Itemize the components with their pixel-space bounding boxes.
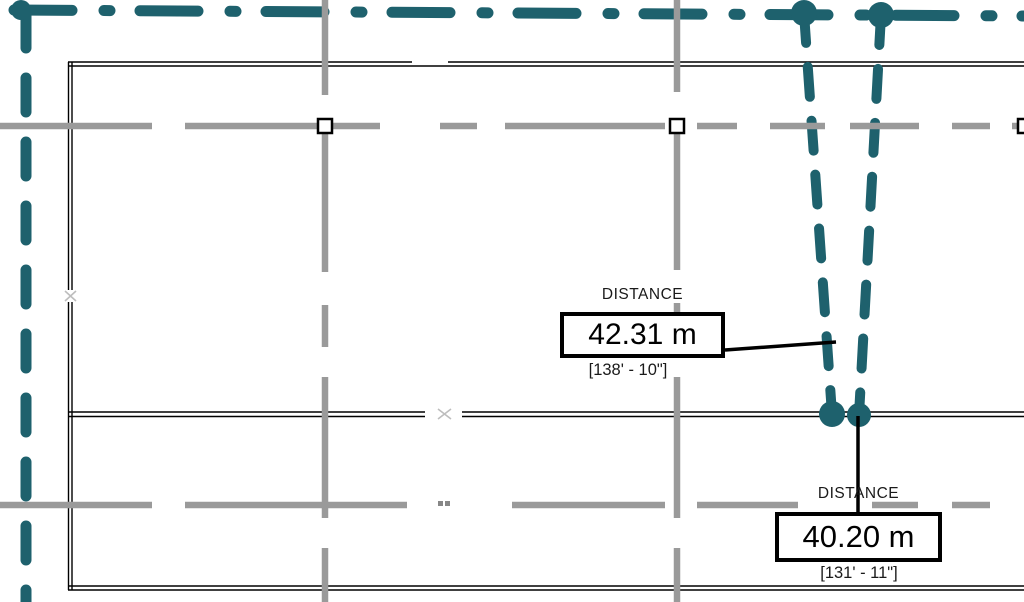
distance-tag-1-title[interactable]: DISTANCE xyxy=(560,286,725,304)
travel-path-right[interactable] xyxy=(859,15,881,415)
distance-tag-2-value-box[interactable]: 40.20 m xyxy=(775,512,942,562)
distance-tag-1-imperial: [138' - 10"] xyxy=(548,361,708,380)
travel-path-left[interactable] xyxy=(804,13,832,414)
wall-opening-x-marks xyxy=(65,291,451,419)
leader-line-tag1[interactable] xyxy=(725,342,836,350)
drawing-viewport[interactable]: DISTANCE 42.31 m [138' - 10"] DISTANCE 4… xyxy=(0,0,1024,602)
opening-x-icon xyxy=(438,409,451,419)
grid-anchor-square-icon[interactable] xyxy=(318,119,332,133)
distance-tag-1-value-box[interactable]: 42.31 m xyxy=(560,312,725,358)
building-walls[interactable] xyxy=(68,62,1024,590)
distance-tag-2-imperial: [131' - 11"] xyxy=(779,564,939,583)
path-endpoint-circle[interactable] xyxy=(819,401,845,427)
wall-bottom[interactable] xyxy=(68,586,1024,590)
grid-anchor-square-icon[interactable] xyxy=(670,119,684,133)
wall-left[interactable] xyxy=(69,62,73,590)
grid-anchor-square-icon[interactable] xyxy=(1018,119,1024,133)
wall-middle[interactable] xyxy=(68,412,1024,417)
distance-tag-1-value: 42.31 m xyxy=(588,318,696,351)
travel-path-endpoints[interactable] xyxy=(11,0,894,427)
grid-dash-dot-marks xyxy=(438,501,450,506)
path-endpoint-circle[interactable] xyxy=(868,2,894,28)
opening-x-icon xyxy=(65,291,76,301)
distance-tag-2-title[interactable]: DISTANCE xyxy=(775,485,942,503)
distance-tag-2-value: 40.20 m xyxy=(802,519,914,554)
boundary-corner-dot xyxy=(11,0,31,20)
path-endpoint-circle[interactable] xyxy=(791,0,817,26)
